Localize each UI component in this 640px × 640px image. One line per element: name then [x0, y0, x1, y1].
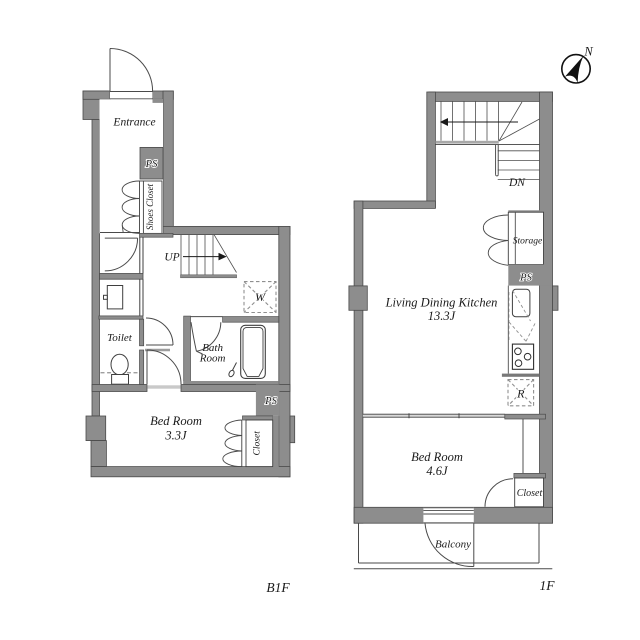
svg-text:PS: PS [145, 159, 158, 170]
svg-text:Bed Room: Bed Room [411, 450, 463, 464]
svg-text:Living Dining Kitchen: Living Dining Kitchen [385, 296, 498, 310]
svg-text:3.3J: 3.3J [164, 429, 188, 443]
svg-text:PS: PS [264, 396, 277, 407]
svg-text:UP: UP [164, 252, 179, 264]
svg-text:4.6J: 4.6J [426, 464, 449, 478]
svg-text:PS: PS [519, 273, 532, 284]
svg-text:N: N [583, 45, 593, 59]
svg-text:Storage: Storage [513, 237, 543, 247]
svg-text:Closet: Closet [517, 488, 543, 499]
svg-text:Bed Room: Bed Room [150, 414, 202, 428]
svg-text:B1F: B1F [266, 580, 290, 595]
svg-text:Shoes Closet: Shoes Closet [145, 183, 155, 230]
svg-text:Closet: Closet [253, 431, 263, 456]
svg-text:Room: Room [199, 353, 226, 365]
svg-text:R: R [516, 387, 525, 401]
svg-text:DN: DN [508, 177, 526, 189]
svg-text:W: W [255, 290, 266, 304]
svg-text:1F: 1F [540, 578, 556, 593]
svg-text:Entrance: Entrance [112, 117, 155, 129]
svg-text:Toilet: Toilet [107, 332, 133, 344]
svg-text:13.3J: 13.3J [428, 309, 457, 323]
svg-text:Balcony: Balcony [435, 539, 471, 551]
